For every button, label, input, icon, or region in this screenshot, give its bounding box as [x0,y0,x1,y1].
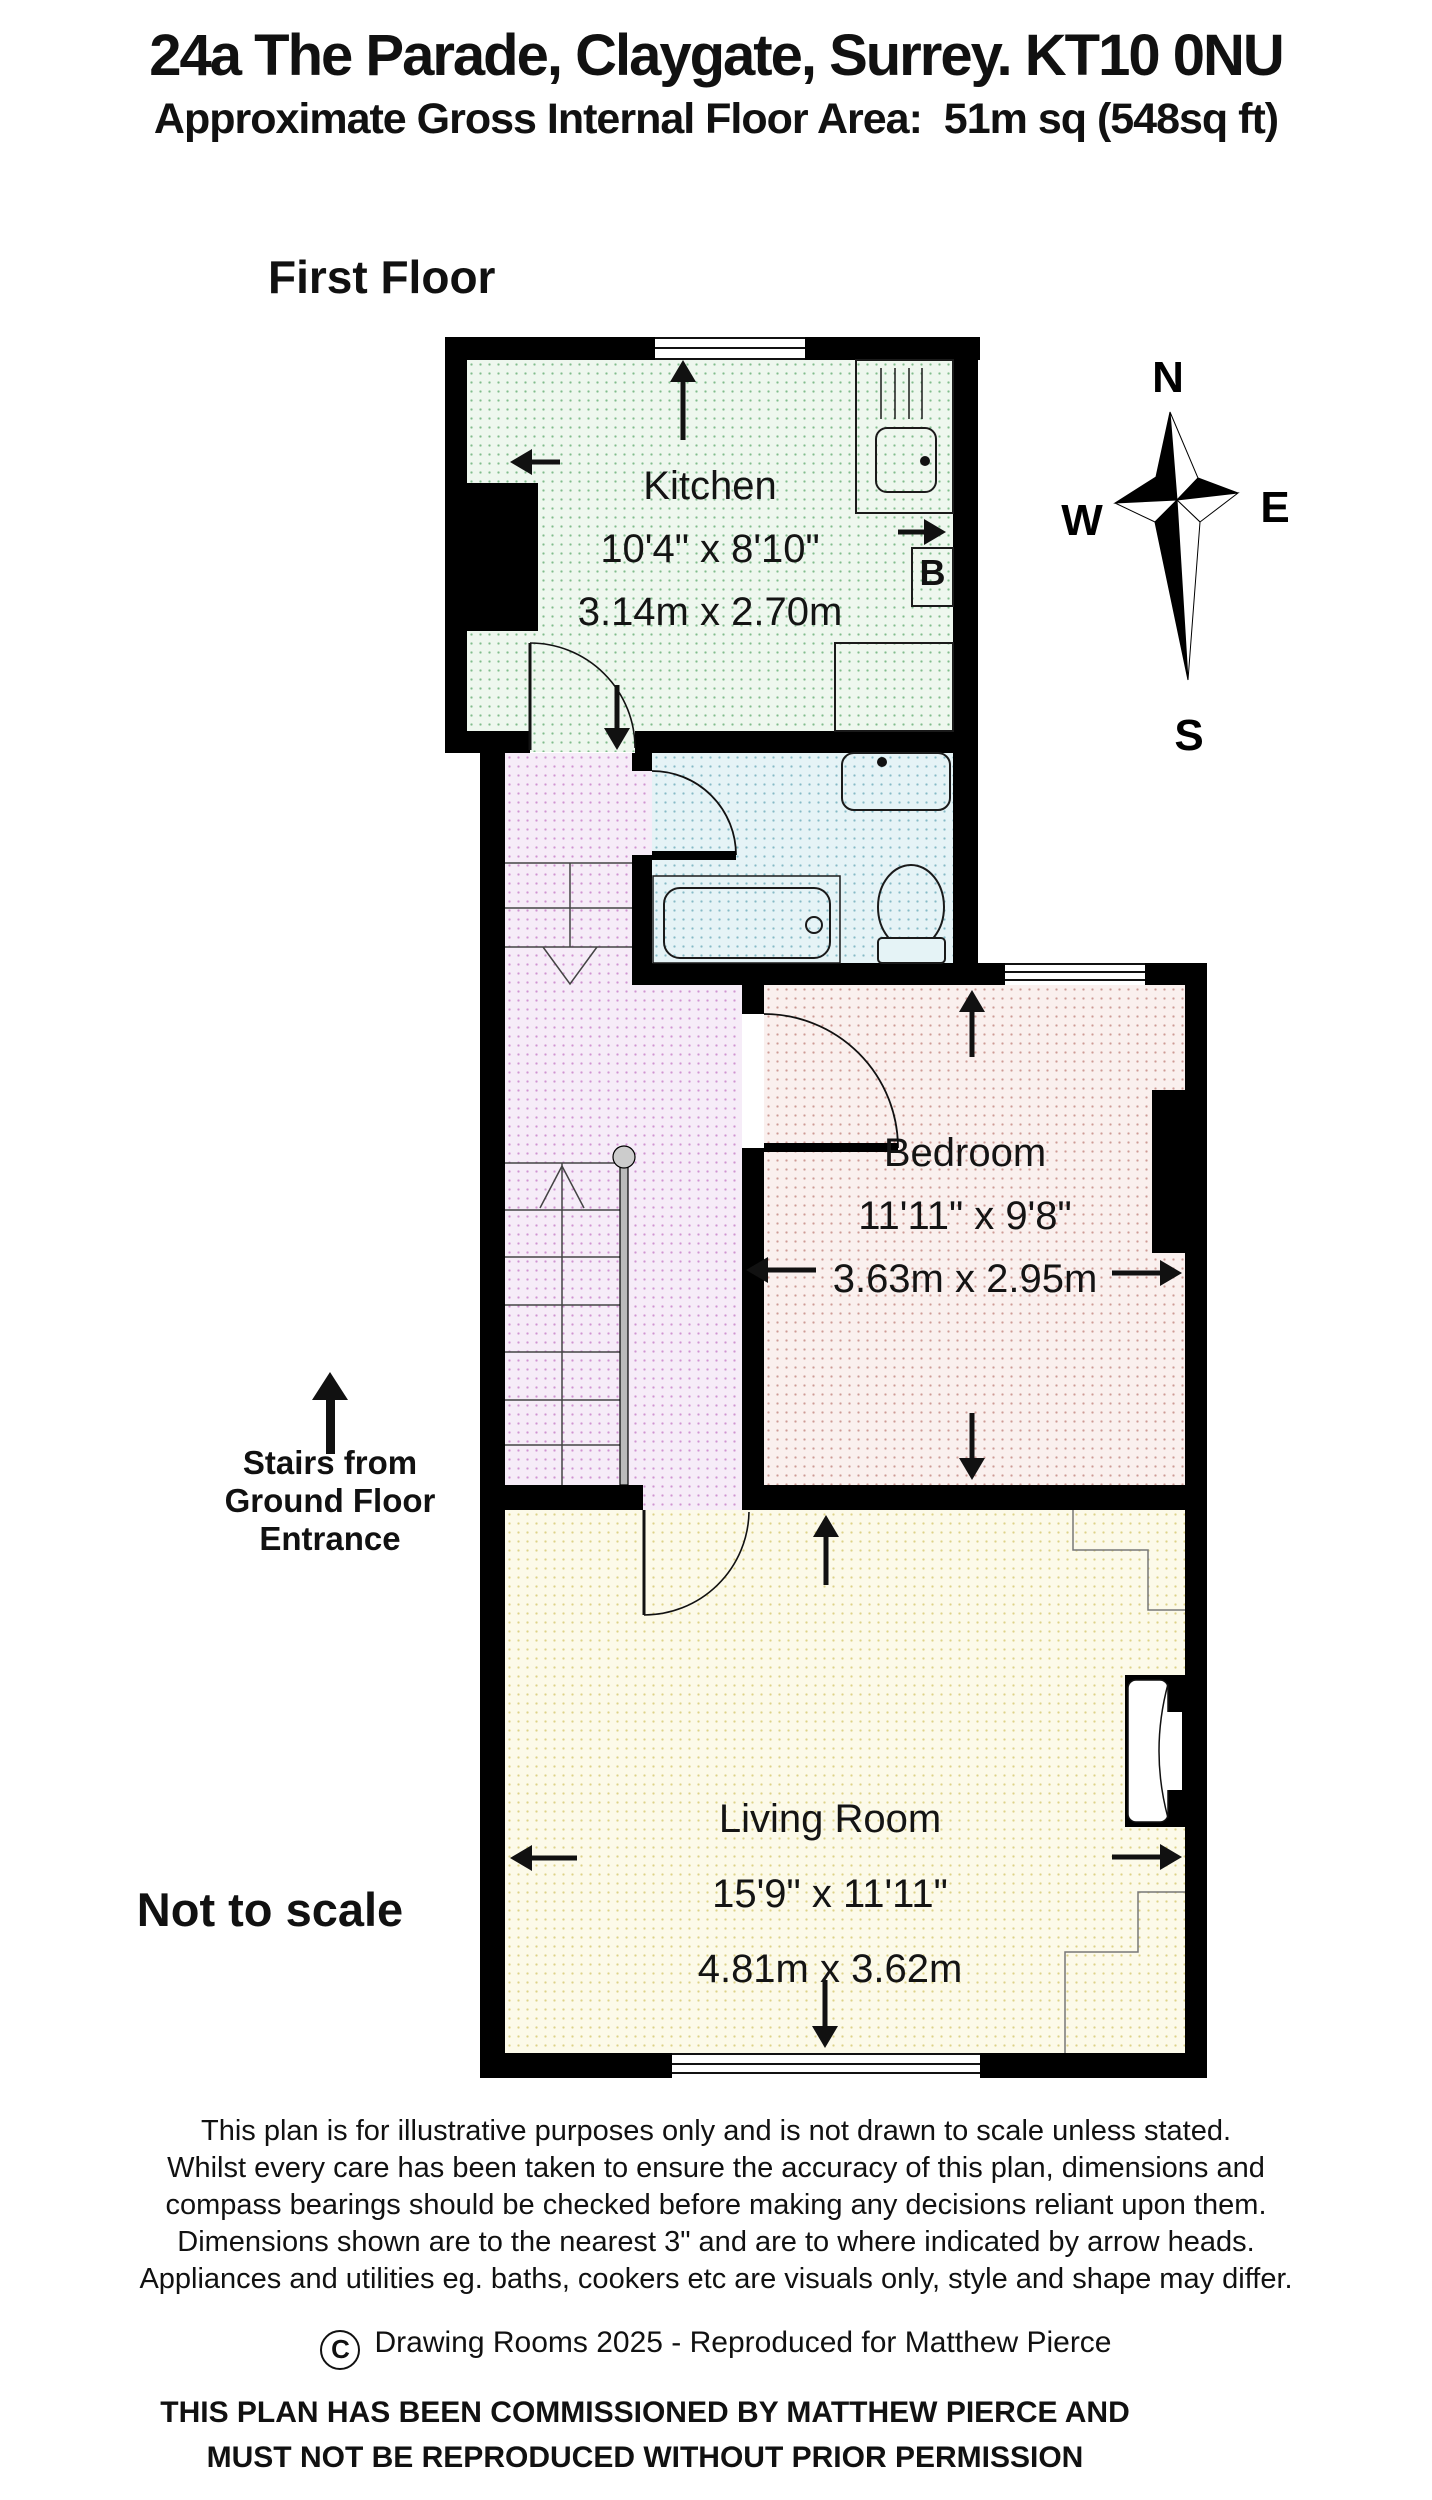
commission-line1: THIS PLAN HAS BEEN COMMISSIONED BY MATTH… [0,2390,1290,2435]
living-room-name: Living Room [580,1782,1080,1857]
bedroom-name: Bedroom [715,1122,1215,1185]
copyright-text: Drawing Rooms 2025 - Reproduced for Matt… [374,2326,1111,2359]
page-title: 24a The Parade, Claygate, Surrey. KT10 0… [0,22,1432,89]
living-room-label: Living Room 15'9" x 11'11" 4.81m x 3.62m [580,1782,1080,2007]
bedroom-imperial: 11'11" x 9'8" [715,1185,1215,1248]
compass-w: W [1061,496,1103,545]
stairs-note-line1: Stairs from [180,1444,480,1482]
stairs-note-line2: Ground Floor [180,1482,480,1520]
kitchen-metric: 3.14m x 2.70m [460,581,960,644]
kitchen-imperial: 10'4" x 8'10" [460,518,960,581]
copyright-icon: C [320,2330,360,2370]
compass-e: E [1260,483,1289,532]
compass-s: S [1174,711,1203,760]
living-room-imperial: 15'9" x 11'11" [580,1857,1080,1932]
bedroom-metric: 3.63m x 2.95m [715,1248,1215,1311]
stairs-note: Stairs from Ground Floor Entrance [180,1444,480,1558]
stairs-entrance-arrow [312,1372,348,1454]
disclaimer-line: compass bearings should be checked befor… [0,2187,1432,2224]
disclaimer-line: Appliances and utilities eg. baths, cook… [0,2261,1432,2298]
commission-notice: THIS PLAN HAS BEEN COMMISSIONED BY MATTH… [0,2390,1290,2480]
boiler-label: B [912,552,953,594]
commission-line2: MUST NOT BE REPRODUCED WITHOUT PRIOR PER… [0,2435,1290,2480]
disclaimer-text: This plan is for illustrative purposes o… [0,2113,1432,2298]
bathroom-floor [652,753,953,963]
disclaimer-line: Dimensions shown are to the nearest 3" a… [0,2224,1432,2261]
disclaimer-line: This plan is for illustrative purposes o… [0,2113,1432,2150]
living-room-metric: 4.81m x 3.62m [580,1932,1080,2007]
floor-label: First Floor [268,250,495,304]
floor-area-subtitle: Approximate Gross Internal Floor Area: 5… [0,95,1432,144]
not-to-scale-label: Not to scale [60,1882,480,1937]
living-room-window [672,2053,980,2074]
kitchen-window [655,337,805,360]
bedroom-window [1005,963,1145,981]
compass-n: N [1152,353,1184,402]
kitchen-name: Kitchen [460,455,960,518]
copyright-line: CDrawing Rooms 2025 - Reproduced for Mat… [0,2326,1432,2370]
floorplan-page: { "header": { "address": "24a The Parade… [0,0,1432,2500]
disclaimer-line: Whilst every care has been taken to ensu… [0,2150,1432,2187]
kitchen-label: Kitchen 10'4" x 8'10" 3.14m x 2.70m [460,455,960,644]
bedroom-label: Bedroom 11'11" x 9'8" 3.63m x 2.95m [715,1122,1215,1311]
stairs-note-line3: Entrance [180,1520,480,1558]
compass-rose: N E W S [1061,353,1289,760]
